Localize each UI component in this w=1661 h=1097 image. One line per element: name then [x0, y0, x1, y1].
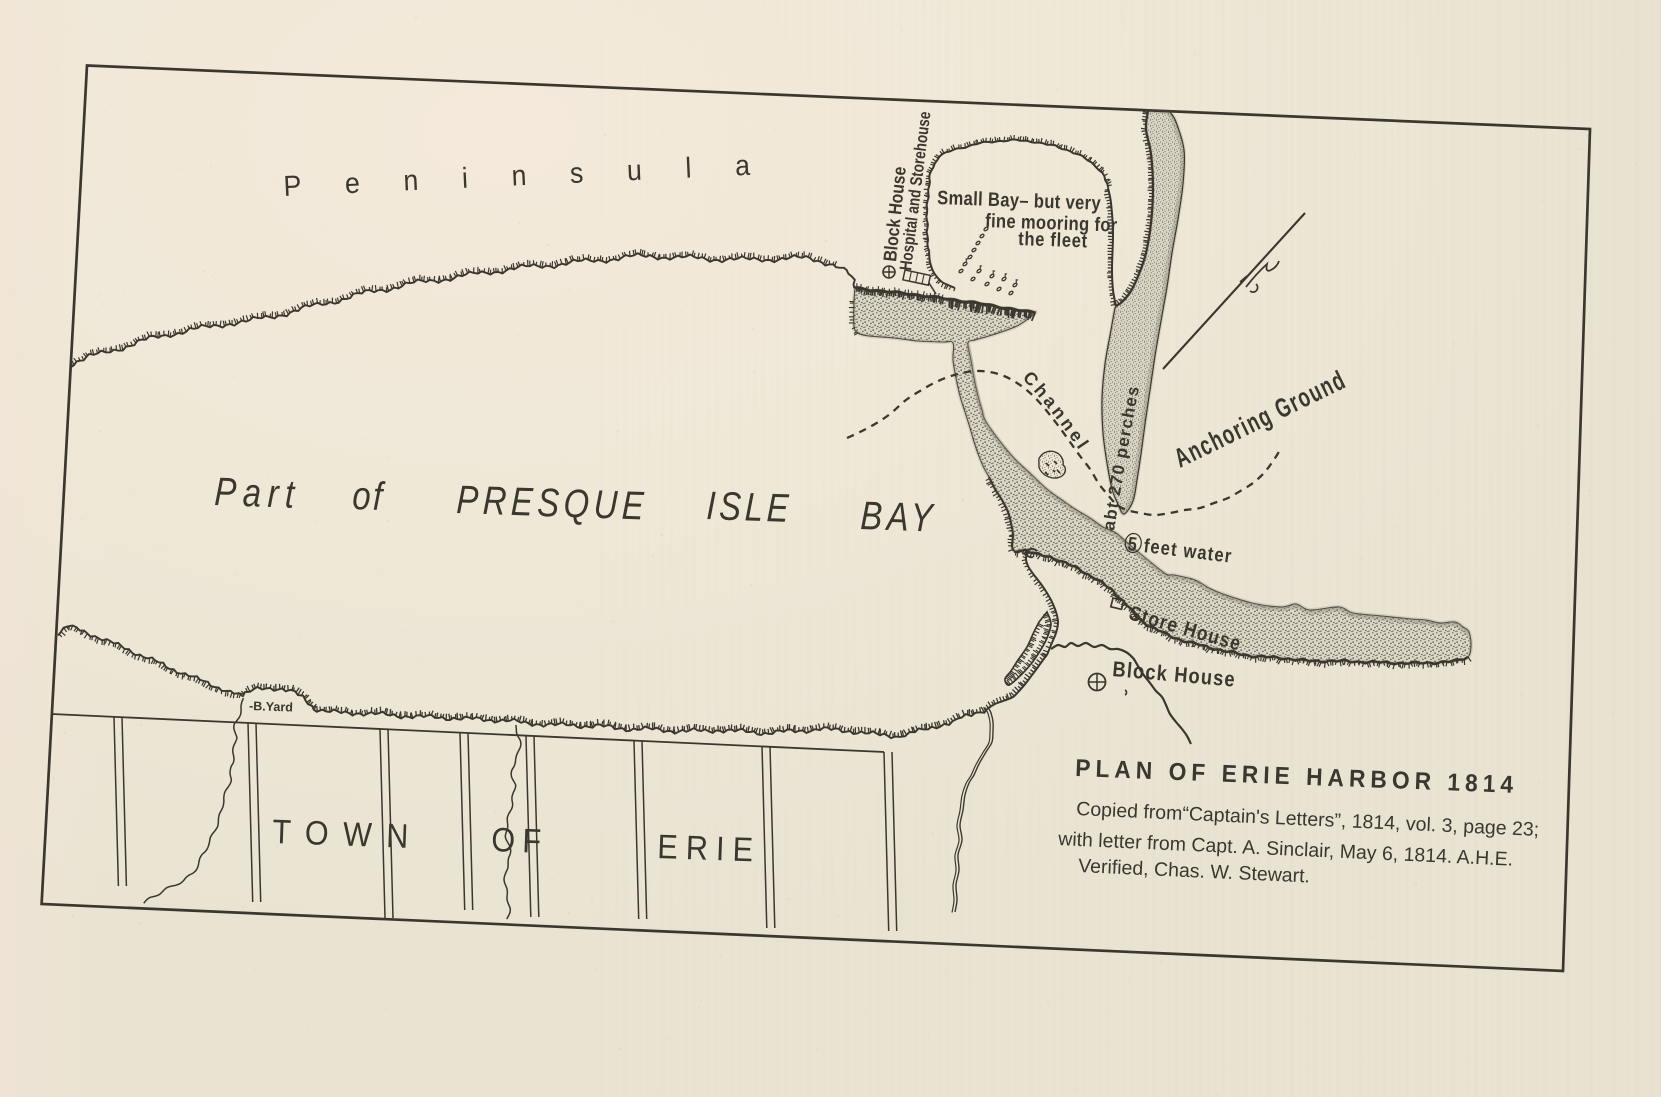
svg-text:ISLE: ISLE	[706, 483, 793, 531]
svg-text:of: of	[352, 473, 387, 519]
svg-text:TOWN: TOWN	[272, 813, 424, 856]
svg-text:-B.Yard: -B.Yard	[249, 699, 293, 715]
svg-text:ERIE: ERIE	[657, 828, 762, 869]
svg-text:the fleet: the fleet	[1018, 228, 1088, 252]
svg-text:Part: Part	[214, 469, 302, 517]
svg-text:OF: OF	[491, 821, 549, 861]
svg-text:PRESQUE: PRESQUE	[456, 477, 649, 529]
svg-text:BAY: BAY	[860, 493, 938, 540]
